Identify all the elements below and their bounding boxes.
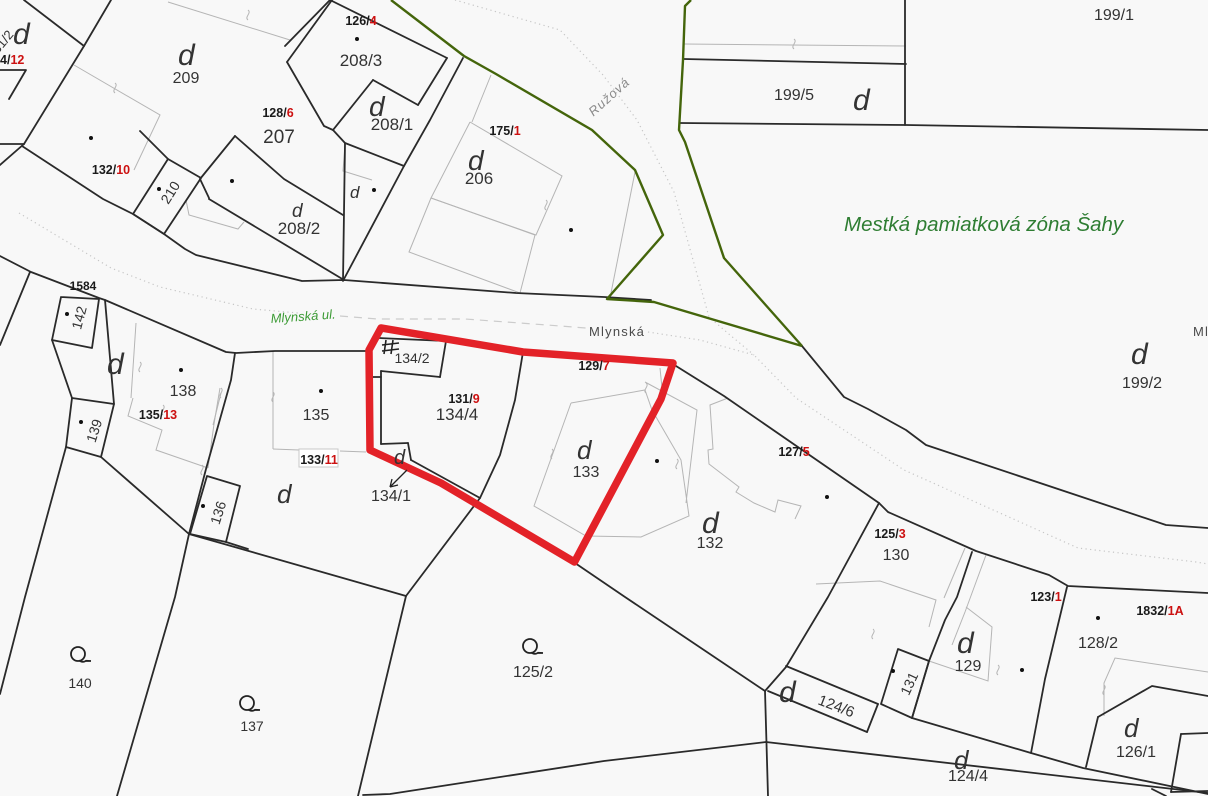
- svg-text:208/3: 208/3: [340, 51, 383, 70]
- svg-text:125/3: 125/3: [874, 527, 905, 541]
- svg-text:206: 206: [465, 169, 493, 188]
- svg-text:134/2: 134/2: [394, 350, 429, 366]
- svg-text:208/1: 208/1: [371, 115, 414, 134]
- svg-text:131/9: 131/9: [448, 392, 479, 406]
- svg-text:208/2: 208/2: [278, 219, 321, 238]
- svg-text:Mlynská: Mlynská: [1193, 324, 1208, 339]
- svg-text:Mestká pamiatková zóna Šahy: Mestká pamiatková zóna Šahy: [844, 213, 1125, 236]
- svg-text:d: d: [13, 18, 31, 51]
- svg-text:199/2: 199/2: [1122, 375, 1162, 392]
- svg-text:d: d: [1131, 338, 1149, 371]
- svg-text:d: d: [178, 39, 196, 72]
- svg-text:199/1: 199/1: [1094, 7, 1134, 24]
- svg-text:129: 129: [955, 658, 982, 675]
- svg-text:d: d: [853, 84, 871, 117]
- svg-text:125/2: 125/2: [513, 664, 553, 681]
- svg-text:d: d: [1124, 713, 1140, 743]
- svg-text:d: d: [107, 348, 125, 381]
- svg-text:135/13: 135/13: [139, 408, 177, 422]
- svg-text:207: 207: [263, 127, 295, 148]
- svg-text:d: d: [350, 183, 360, 202]
- svg-text:4/12: 4/12: [0, 53, 24, 67]
- svg-text:d: d: [957, 627, 975, 660]
- svg-text:124/4: 124/4: [948, 768, 988, 785]
- svg-text:126/4: 126/4: [345, 14, 376, 28]
- svg-text:Mlynská: Mlynská: [589, 324, 645, 339]
- svg-text:128/2: 128/2: [1078, 635, 1118, 652]
- svg-text:138: 138: [170, 383, 197, 400]
- svg-text:1584: 1584: [70, 279, 97, 293]
- svg-text:137: 137: [240, 718, 264, 734]
- svg-text:209: 209: [173, 70, 200, 87]
- svg-text:d: d: [394, 447, 406, 469]
- svg-text:d: d: [277, 479, 293, 509]
- svg-text:134/4: 134/4: [436, 405, 479, 424]
- svg-text:135: 135: [303, 407, 330, 424]
- svg-text:127/5: 127/5: [778, 445, 809, 459]
- svg-text:175/1: 175/1: [489, 124, 520, 138]
- svg-text:128/6: 128/6: [262, 106, 293, 120]
- svg-text:130: 130: [883, 547, 910, 564]
- svg-text:129/7: 129/7: [578, 359, 609, 373]
- svg-text:133: 133: [573, 464, 600, 481]
- svg-text:133/11: 133/11: [300, 453, 338, 467]
- svg-text:1832/1A: 1832/1A: [1136, 604, 1183, 618]
- svg-text:123/1: 123/1: [1030, 590, 1061, 604]
- svg-text:140: 140: [68, 675, 92, 691]
- svg-text:d: d: [779, 676, 797, 709]
- svg-text:199/5: 199/5: [774, 87, 814, 104]
- svg-text:132/10: 132/10: [92, 163, 130, 177]
- svg-text:132: 132: [697, 535, 724, 552]
- svg-text:134/1: 134/1: [371, 488, 411, 505]
- svg-text:126/1: 126/1: [1116, 744, 1156, 761]
- svg-text:d: d: [577, 435, 593, 465]
